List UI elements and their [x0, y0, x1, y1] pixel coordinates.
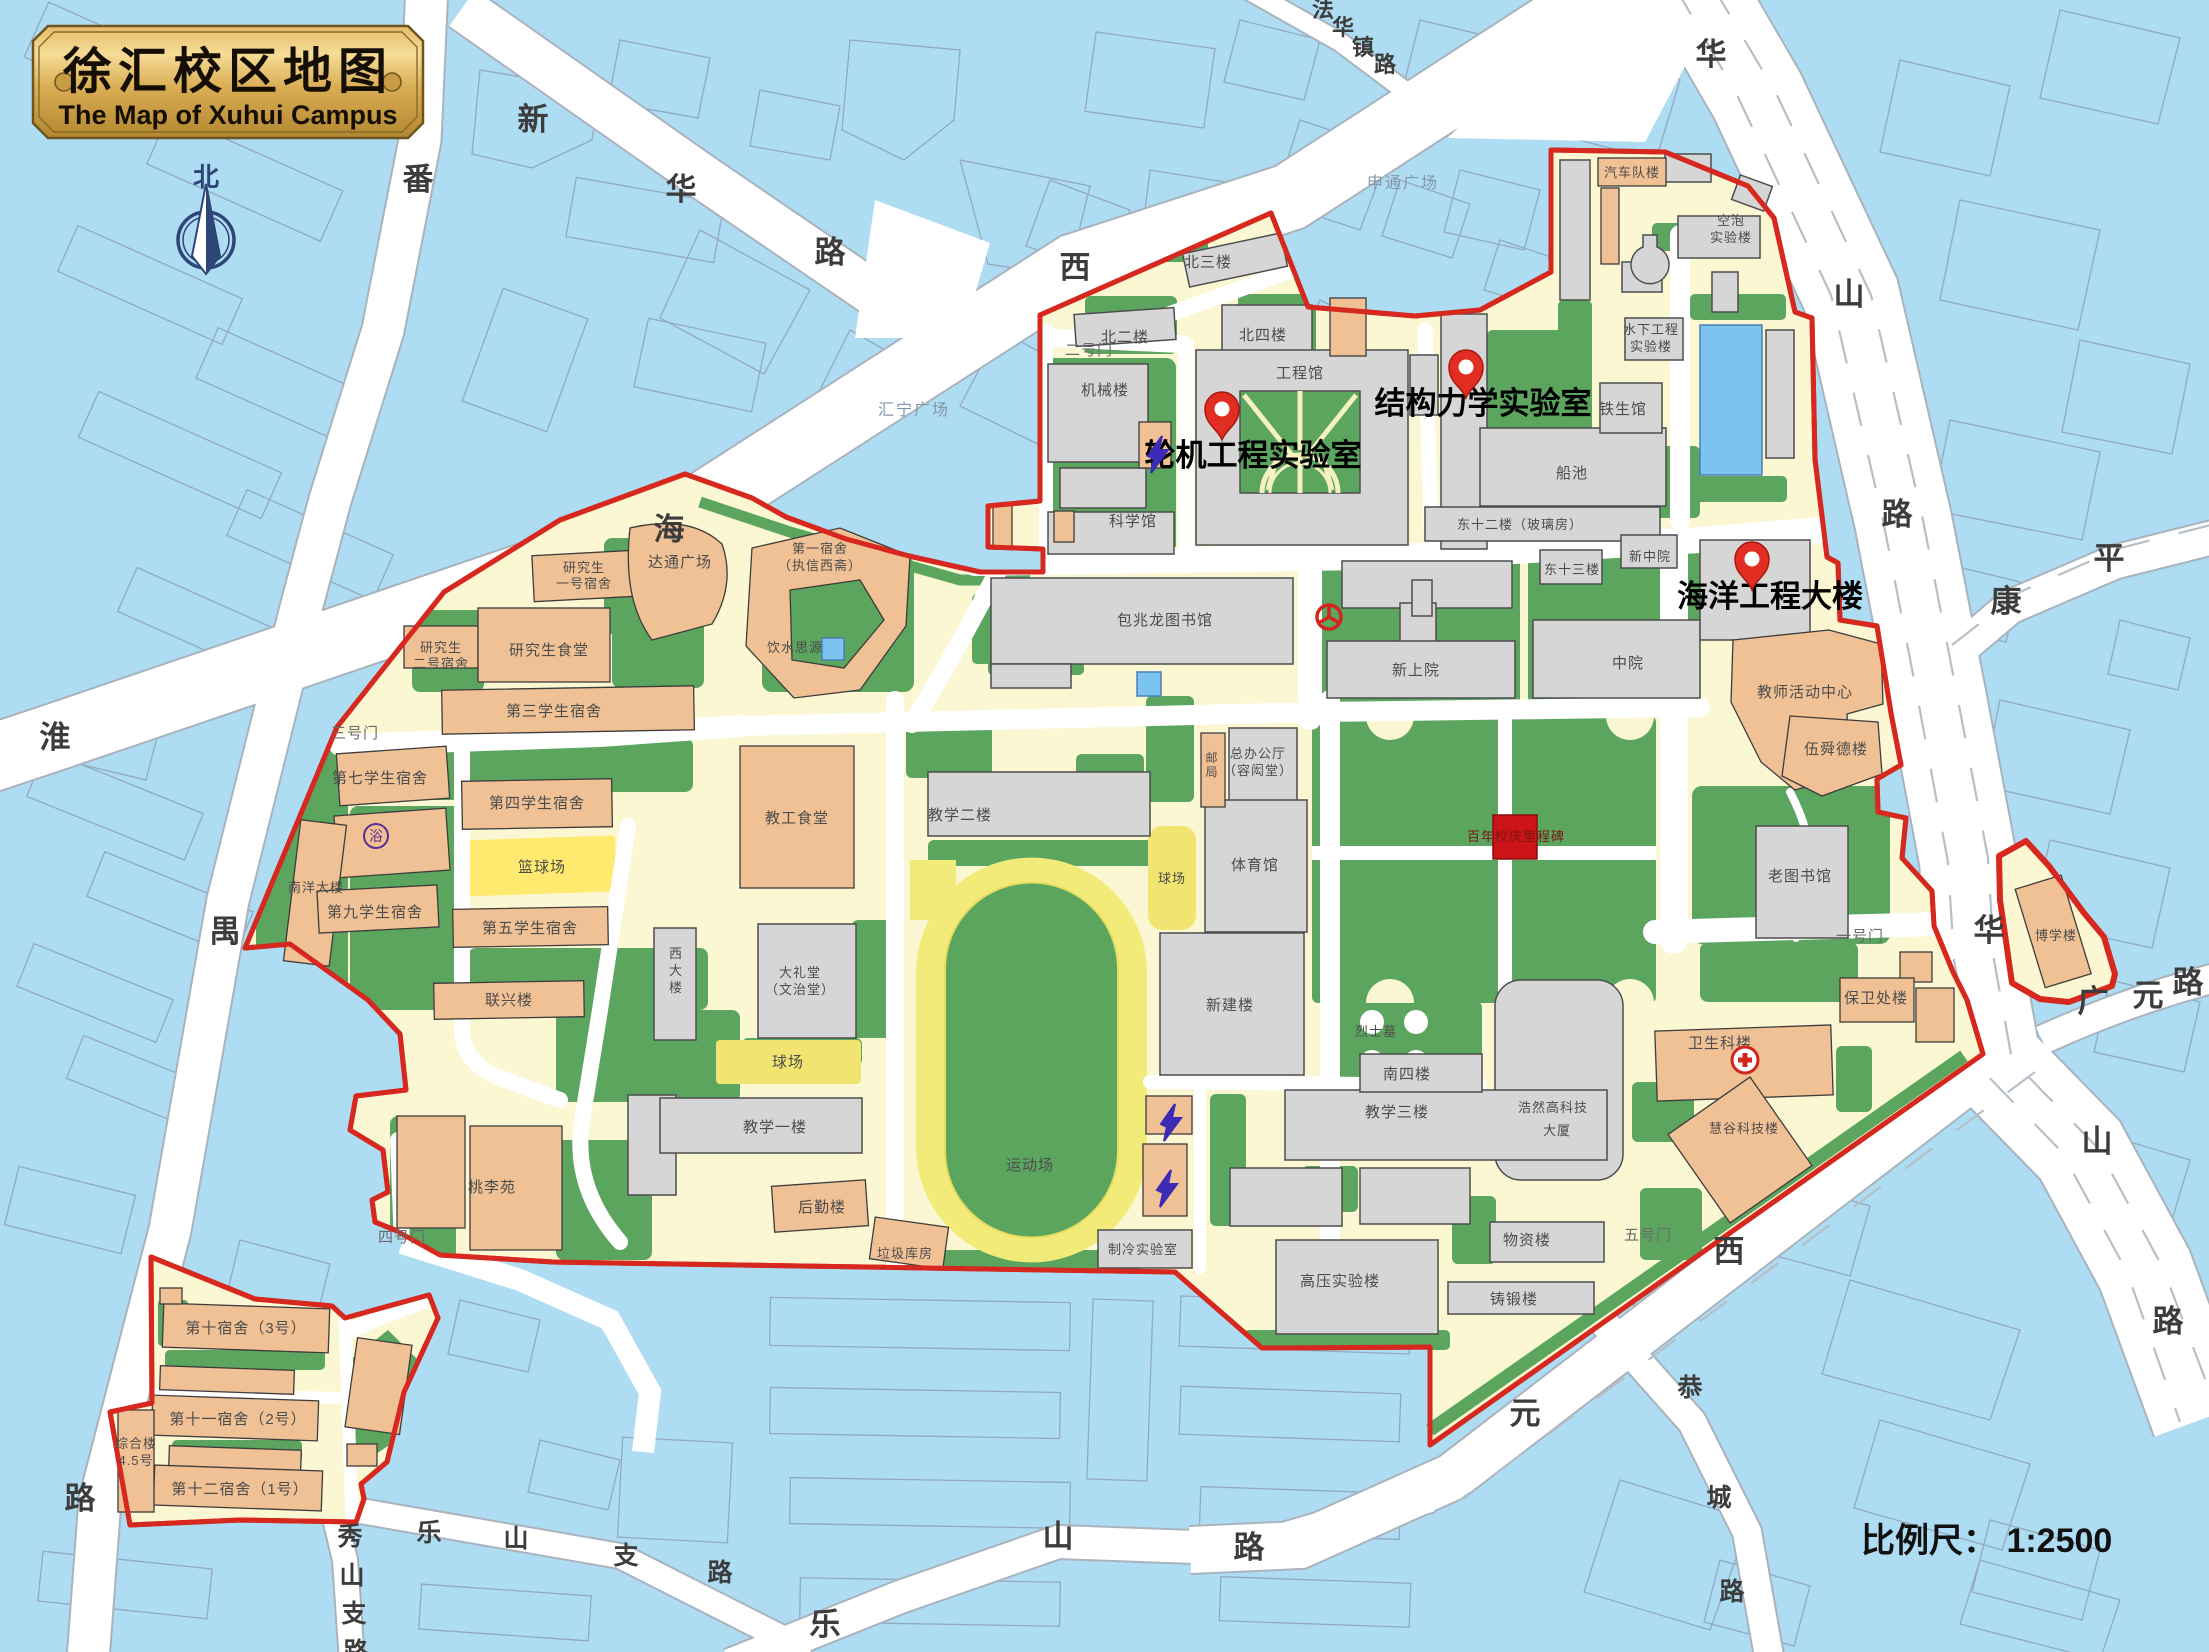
svg-text:（文治堂）: （文治堂）: [765, 982, 835, 997]
svg-text:新: 新: [518, 102, 549, 137]
svg-text:申通广场: 申通广场: [1367, 174, 1439, 192]
svg-text:研究生: 研究生: [563, 560, 605, 575]
svg-text:平: 平: [2094, 541, 2125, 576]
svg-text:制冷实验室: 制冷实验室: [1108, 1242, 1178, 1257]
svg-text:新上院: 新上院: [1392, 661, 1440, 679]
svg-text:山: 山: [2082, 1124, 2113, 1159]
svg-text:支: 支: [341, 1600, 366, 1628]
svg-text:广: 广: [2078, 984, 2109, 1019]
svg-text:教学三楼: 教学三楼: [1365, 1104, 1429, 1121]
svg-text:后勤楼: 后勤楼: [798, 1199, 846, 1216]
svg-text:乐: 乐: [416, 1519, 441, 1547]
svg-text:山: 山: [1834, 277, 1865, 312]
svg-text:南四楼: 南四楼: [1383, 1066, 1431, 1083]
svg-text:邮: 邮: [1205, 751, 1218, 765]
svg-text:结构力学实验室: 结构力学实验室: [1375, 386, 1592, 421]
svg-text:路: 路: [815, 235, 847, 270]
svg-text:伍舜德楼: 伍舜德楼: [1804, 740, 1868, 758]
svg-text:教学一楼: 教学一楼: [743, 1119, 807, 1136]
svg-text:华: 华: [1974, 913, 2005, 948]
svg-text:华: 华: [1332, 15, 1354, 40]
svg-text:禺: 禺: [210, 914, 241, 949]
svg-text:路: 路: [1234, 1530, 1266, 1565]
svg-text:达通广场: 达通广场: [648, 554, 712, 571]
svg-text:老图书馆: 老图书馆: [1768, 868, 1832, 885]
svg-text:第十一宿舍（2号）: 第十一宿舍（2号）: [169, 1410, 306, 1428]
svg-text:二号宿舍: 二号宿舍: [413, 656, 469, 671]
svg-text:研究生食堂: 研究生食堂: [509, 642, 589, 659]
svg-text:徐汇校区地图: 徐汇校区地图: [62, 45, 393, 99]
svg-text:（容闳堂）: （容闳堂）: [1223, 763, 1293, 778]
svg-text:球场: 球场: [1158, 871, 1186, 886]
svg-text:路: 路: [707, 1559, 733, 1587]
svg-text:体育馆: 体育馆: [1231, 857, 1279, 874]
svg-text:大礼堂: 大礼堂: [779, 965, 821, 980]
svg-text:空泡: 空泡: [1717, 213, 1745, 228]
svg-text:轮机工程实验室: 轮机工程实验室: [1145, 438, 1362, 473]
svg-text:大: 大: [669, 963, 683, 978]
svg-text:实验楼: 实验楼: [1630, 339, 1672, 354]
svg-text:西: 西: [1060, 250, 1091, 285]
svg-text:新建楼: 新建楼: [1206, 997, 1254, 1014]
svg-text:比例尺： 1:2500: 比例尺： 1:2500: [1861, 1522, 2112, 1560]
svg-text:一号门: 一号门: [1836, 928, 1884, 945]
svg-text:总办公厅: 总办公厅: [1230, 746, 1286, 761]
svg-text:（执信西斋）: （执信西斋）: [778, 558, 862, 573]
svg-text:第九学生宿舍: 第九学生宿舍: [327, 903, 423, 921]
svg-text:烈士墓: 烈士墓: [1355, 1024, 1397, 1039]
svg-text:桃李苑: 桃李苑: [468, 1179, 516, 1196]
svg-text:五号门: 五号门: [1624, 1227, 1672, 1244]
svg-text:船池: 船池: [1556, 465, 1588, 482]
svg-text:大厦: 大厦: [1543, 1123, 1571, 1138]
svg-text:西: 西: [1714, 1234, 1745, 1269]
svg-text:饮水思源: 饮水思源: [767, 640, 823, 655]
svg-text:华: 华: [1696, 37, 1727, 72]
svg-text:第一宿舍: 第一宿舍: [792, 541, 848, 556]
svg-text:山: 山: [339, 1562, 364, 1590]
svg-text:北: 北: [193, 162, 219, 192]
svg-text:高压实验楼: 高压实验楼: [1300, 1273, 1380, 1290]
svg-text:慧谷科技楼: 慧谷科技楼: [1709, 1121, 1779, 1136]
svg-text:汇宁广场: 汇宁广场: [878, 401, 950, 419]
svg-text:汽车队楼: 汽车队楼: [1604, 165, 1660, 180]
svg-text:博学楼: 博学楼: [2035, 928, 2077, 943]
svg-text:路: 路: [2173, 965, 2205, 1000]
svg-text:秀: 秀: [336, 1523, 362, 1551]
svg-text:北四楼: 北四楼: [1239, 327, 1287, 344]
svg-text:镇: 镇: [1352, 35, 1374, 60]
svg-text:第四学生宿舍: 第四学生宿舍: [489, 794, 585, 812]
svg-text:淮: 淮: [40, 720, 71, 755]
svg-text:乐: 乐: [810, 1607, 841, 1642]
svg-text:新中院: 新中院: [1629, 549, 1671, 564]
svg-text:The Map of Xuhui Campus: The Map of Xuhui Campus: [58, 100, 397, 130]
svg-text:支: 支: [613, 1542, 638, 1570]
svg-text:物资楼: 物资楼: [1503, 1232, 1551, 1249]
svg-text:浩然高科技: 浩然高科技: [1518, 1100, 1588, 1115]
svg-text:康: 康: [1991, 584, 2023, 619]
svg-text:番: 番: [403, 162, 435, 197]
svg-text:机械楼: 机械楼: [1081, 382, 1129, 399]
svg-text:一号宿舍: 一号宿舍: [556, 576, 612, 591]
svg-text:百年校庆里程碑: 百年校庆里程碑: [1467, 829, 1565, 844]
svg-text:东十三楼: 东十三楼: [1544, 562, 1600, 577]
svg-text:实验楼: 实验楼: [1710, 230, 1752, 245]
svg-text:路: 路: [1882, 497, 1914, 532]
svg-text:路: 路: [2153, 1304, 2185, 1339]
svg-text:球场: 球场: [772, 1054, 804, 1071]
svg-text:铸锻楼: 铸锻楼: [1490, 1291, 1538, 1308]
svg-text:元: 元: [2133, 978, 2164, 1013]
svg-text:三号门: 三号门: [331, 725, 379, 742]
svg-text:法: 法: [1312, 0, 1334, 22]
svg-text:海洋工程大楼: 海洋工程大楼: [1677, 579, 1863, 614]
svg-text:联兴楼: 联兴楼: [485, 992, 533, 1009]
svg-text:工程馆: 工程馆: [1276, 365, 1324, 382]
svg-text:科学馆: 科学馆: [1109, 513, 1157, 530]
svg-text:第十二宿舍（1号）: 第十二宿舍（1号）: [171, 1480, 308, 1498]
svg-text:路: 路: [65, 1481, 97, 1516]
svg-text:南洋大楼: 南洋大楼: [288, 880, 344, 895]
svg-text:教工食堂: 教工食堂: [765, 810, 829, 827]
svg-text:教师活动中心: 教师活动中心: [1757, 684, 1853, 701]
svg-text:四号门: 四号门: [378, 1229, 426, 1246]
svg-text:综合楼: 综合楼: [115, 1436, 157, 1451]
svg-text:垃圾库房: 垃圾库房: [877, 1246, 933, 1261]
svg-text:路: 路: [1374, 52, 1397, 77]
svg-text:楼: 楼: [669, 980, 683, 995]
svg-text:路: 路: [343, 1638, 369, 1652]
svg-text:铁生馆: 铁生馆: [1599, 401, 1647, 418]
svg-text:4.5号: 4.5号: [118, 1453, 153, 1468]
svg-text:山: 山: [1043, 1519, 1074, 1554]
svg-text:浴: 浴: [369, 828, 383, 844]
svg-text:路: 路: [1719, 1578, 1745, 1606]
svg-text:教学二楼: 教学二楼: [928, 807, 992, 824]
svg-text:华: 华: [666, 172, 697, 207]
svg-text:第三学生宿舍: 第三学生宿舍: [506, 702, 602, 720]
svg-text:恭: 恭: [1676, 1373, 1703, 1402]
svg-text:西: 西: [669, 946, 683, 961]
svg-text:山: 山: [503, 1525, 528, 1553]
svg-text:第七学生宿舍: 第七学生宿舍: [332, 769, 428, 787]
svg-text:包兆龙图书馆: 包兆龙图书馆: [1117, 612, 1213, 629]
svg-text:保卫处楼: 保卫处楼: [1844, 990, 1908, 1007]
svg-text:研究生: 研究生: [420, 640, 462, 655]
svg-text:北三楼: 北三楼: [1184, 254, 1232, 271]
svg-text:运动场: 运动场: [1006, 1157, 1054, 1174]
svg-text:篮球场: 篮球场: [518, 858, 566, 876]
svg-text:第十宿舍（3号）: 第十宿舍（3号）: [185, 1319, 306, 1337]
svg-text:第五学生宿舍: 第五学生宿舍: [482, 919, 578, 937]
svg-text:中院: 中院: [1612, 654, 1644, 672]
svg-text:海: 海: [654, 512, 685, 547]
svg-text:水下工程: 水下工程: [1623, 322, 1679, 337]
svg-text:局: 局: [1205, 765, 1218, 779]
svg-text:东十二楼（玻璃房）: 东十二楼（玻璃房）: [1457, 517, 1583, 532]
svg-text:城: 城: [1706, 1484, 1731, 1512]
svg-text:元: 元: [1510, 1396, 1541, 1431]
svg-text:二号门: 二号门: [1065, 342, 1113, 359]
